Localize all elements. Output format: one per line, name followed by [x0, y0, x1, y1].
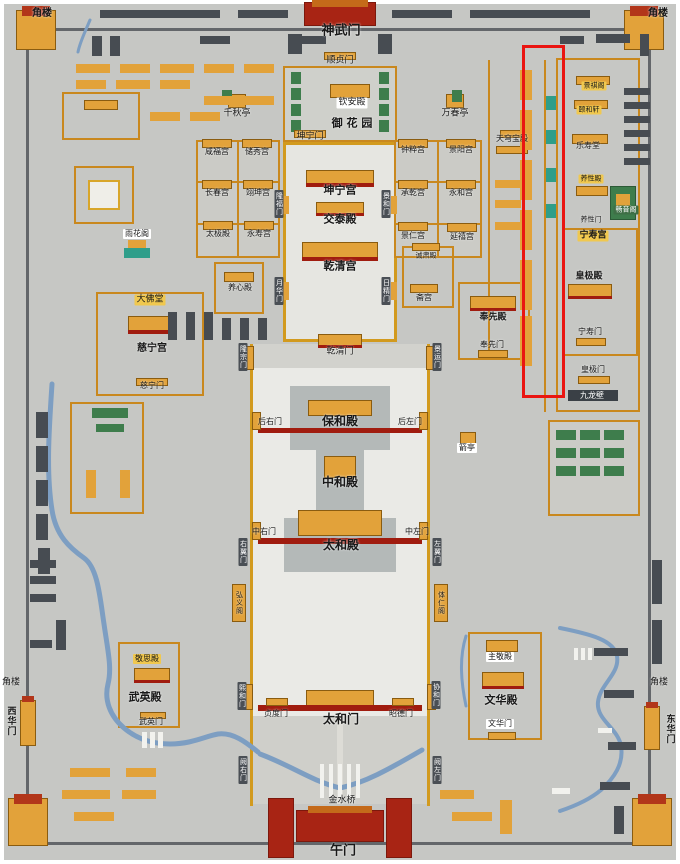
map-building: [110, 36, 120, 56]
map-building: [470, 10, 590, 18]
map-label: 储秀宫: [245, 148, 269, 156]
map-building: [495, 180, 521, 188]
map-label: 太极殿: [206, 230, 230, 238]
jinshui-bridge: [329, 764, 333, 798]
map-building: [652, 620, 662, 664]
map-label: 隆福门: [275, 190, 284, 218]
map-building: [30, 576, 56, 584]
map-label: 钟粹宫: [401, 146, 425, 154]
map-building: [134, 680, 170, 683]
map-label: 皇极门: [581, 366, 605, 374]
map-building: [306, 690, 374, 706]
map-label: 后左门: [398, 418, 422, 426]
map-label: 午门: [330, 845, 356, 858]
map-label: 文华门: [486, 719, 514, 729]
map-building: [578, 376, 610, 384]
jinshui-bridge: [356, 764, 360, 798]
map-building: [391, 282, 397, 300]
map-building: [470, 308, 516, 311]
map-label: 金水桥: [328, 797, 355, 806]
map-building: [412, 243, 440, 251]
map-label: 角楼: [2, 679, 20, 688]
map-label: 奉先殿: [479, 314, 506, 323]
map-label: 东华门: [665, 714, 674, 744]
map-building: [594, 648, 628, 656]
map-building: [291, 72, 301, 84]
map-label: 坤宁门: [296, 133, 323, 142]
map-building: [36, 446, 48, 472]
map-building: [392, 10, 452, 18]
map-building: [204, 96, 234, 105]
map-building: [22, 696, 34, 702]
map-building: [244, 64, 274, 73]
map-building: [56, 620, 66, 650]
map-building: [36, 480, 48, 506]
map-building: [258, 428, 422, 433]
map-label: 九龙壁: [578, 391, 606, 401]
map-building: [378, 34, 392, 54]
map-label: 翊坤宫: [246, 189, 270, 197]
meridian-gate: [268, 798, 294, 858]
map-building: [520, 70, 532, 100]
map-building: [204, 64, 234, 73]
map-label: 阙右门: [239, 756, 248, 784]
map-label: 后右门: [258, 418, 282, 426]
map-label: 主敬殿: [486, 652, 514, 662]
map-building: [588, 648, 592, 660]
map-building: [291, 88, 301, 100]
map-label: 中左门: [405, 528, 429, 536]
map-label: 养性门: [581, 217, 602, 224]
map-building: [604, 690, 634, 698]
map-building: [560, 36, 584, 44]
duanhong-bridge: [158, 732, 163, 748]
map-building: [410, 284, 438, 293]
map-label: 宁寿宫: [577, 231, 608, 242]
map-building: [581, 648, 585, 660]
meridian-gate: [296, 810, 384, 842]
map-building: [222, 318, 231, 340]
map-building: [624, 130, 650, 137]
map-building: [580, 448, 600, 458]
map-label: 奉先门: [480, 341, 504, 349]
map-label: 乐寿堂: [576, 142, 600, 150]
map-label: 景阳宫: [449, 146, 473, 154]
map-label: 角楼: [650, 679, 668, 688]
map-label: 保和殿: [322, 415, 358, 427]
map-building: [204, 312, 213, 340]
map-building: [604, 466, 624, 476]
map-building: [392, 698, 414, 706]
map-label: 永和宫: [449, 189, 473, 197]
map-label: 乾清宫: [324, 261, 357, 272]
corner-tower: [8, 798, 48, 846]
map-label: 左翼门: [433, 538, 442, 566]
map-building: [122, 790, 156, 799]
map-building: [92, 36, 102, 56]
map-building: [546, 130, 556, 144]
map-building: [100, 10, 220, 18]
map-building: [640, 34, 649, 56]
map-building: [306, 170, 374, 184]
map-label: 景仁宫: [401, 232, 425, 240]
map-structure: [544, 60, 546, 412]
map-label: 交泰殿: [324, 214, 357, 225]
map-building: [330, 84, 370, 98]
map-label: 日精门: [382, 277, 391, 305]
map-building: [14, 794, 42, 804]
duanhong-bridge: [150, 732, 155, 748]
map-building: [546, 96, 556, 110]
map-label: 右翼门: [239, 538, 248, 566]
map-building: [556, 466, 576, 476]
map-building: [520, 260, 532, 310]
map-building: [379, 88, 389, 100]
map-label: 天穹宝殿: [496, 135, 528, 143]
map-label: 长春宫: [205, 189, 229, 197]
map-label: 雨花阁: [123, 229, 151, 239]
map-building: [486, 640, 518, 652]
map-building: [580, 466, 600, 476]
map-label: 永寿宫: [247, 230, 271, 238]
map-building: [568, 296, 612, 299]
map-label: 乾清门: [326, 348, 353, 357]
map-label: 隆宗门: [239, 343, 248, 371]
map-building: [614, 806, 624, 834]
map-building: [398, 222, 428, 231]
map-building: [76, 64, 110, 73]
map-building: [291, 104, 301, 116]
map-label: 承乾宫: [401, 189, 425, 197]
map-label: 协和门: [432, 681, 441, 709]
map-building: [576, 338, 606, 346]
map-building: [495, 222, 521, 230]
map-building: [624, 144, 650, 151]
map-structure: [237, 140, 239, 258]
map-label: 熙和门: [238, 682, 247, 710]
map-label: 咸福宫: [205, 148, 229, 156]
map-label: 角楼: [648, 9, 668, 19]
map-building: [70, 768, 110, 777]
map-building: [160, 80, 190, 89]
map-building: [160, 64, 194, 73]
map-label: 中右门: [252, 528, 276, 536]
map-building: [120, 470, 130, 498]
map-building: [128, 240, 146, 248]
map-building: [624, 116, 650, 123]
map-building: [244, 96, 274, 105]
meridian-gate: [386, 798, 412, 858]
map-building: [36, 412, 48, 438]
map-label: 太和殿: [323, 539, 359, 551]
donghua-gate: [644, 706, 660, 750]
map-building: [440, 790, 474, 799]
map-building: [186, 312, 195, 340]
map-label: 昭德门: [389, 710, 413, 718]
duanhong-bridge: [142, 732, 147, 748]
map-building: [598, 728, 612, 733]
map-building: [520, 160, 532, 200]
map-label: 西华门: [6, 706, 15, 736]
map-label: 文华殿: [485, 695, 518, 706]
map-label: 畅音阁: [614, 206, 639, 215]
map-building: [120, 64, 150, 73]
map-label: 敬思殿: [133, 654, 161, 664]
map-building: [624, 88, 650, 95]
map-building: [500, 800, 512, 834]
map-label: 武英门: [139, 718, 163, 726]
map-building: [495, 200, 521, 208]
map-label: 体仁阁: [438, 591, 445, 615]
map-label: 箭亭: [457, 443, 477, 453]
map-label: 弘义阁: [236, 591, 243, 615]
map-building: [596, 34, 630, 43]
map-building: [190, 112, 220, 121]
map-label: 坤宁宫: [324, 185, 357, 196]
map-label: 皇极殿: [575, 273, 602, 282]
map-label: 景运门: [433, 343, 442, 371]
map-label: 诚肃殿: [416, 253, 437, 260]
map-label: 慈宁门: [140, 382, 164, 390]
map-building: [168, 312, 177, 340]
jinshui-bridge: [320, 764, 324, 798]
map-building: [646, 702, 658, 708]
map-building: [452, 812, 492, 821]
map-label: 贞度门: [264, 710, 288, 718]
map-building: [283, 196, 289, 214]
map-label: 月华门: [275, 277, 284, 305]
map-label: 养心殿: [228, 284, 252, 292]
map-label: 御 花 园: [332, 118, 373, 129]
map-label: 万春亭: [441, 110, 468, 119]
map-label: 角楼: [32, 9, 52, 19]
map-building: [116, 80, 150, 89]
map-building: [30, 640, 52, 648]
map-building: [92, 408, 128, 418]
map-building: [96, 424, 124, 432]
map-building: [312, 0, 368, 7]
map-building: [520, 316, 532, 366]
map-label: 慈宁宫: [137, 344, 167, 354]
map-building: [546, 168, 556, 182]
map-building: [574, 648, 578, 660]
map-building: [379, 104, 389, 116]
map-building: [74, 812, 114, 821]
map-building: [283, 282, 289, 300]
map-building: [30, 594, 56, 602]
map-label: 神武门: [321, 25, 360, 38]
map-building: [556, 448, 576, 458]
map-building: [238, 10, 288, 18]
map-building: [520, 210, 532, 250]
map-building: [576, 186, 608, 196]
corner-tower: [632, 798, 672, 846]
xihua-gate: [20, 700, 36, 746]
map-label: 宁寿门: [578, 328, 602, 336]
map-building: [447, 223, 477, 232]
map-building: [224, 272, 254, 282]
map-structure: [88, 180, 120, 210]
map-building: [62, 790, 110, 799]
map-building: [240, 318, 249, 340]
map-label: 养性殿: [579, 175, 604, 184]
map-building: [624, 158, 650, 165]
map-structure: [437, 140, 439, 258]
map-building: [86, 470, 96, 498]
map-building: [482, 686, 524, 689]
map-building: [580, 430, 600, 440]
map-building: [604, 430, 624, 440]
map-label: 武英殿: [129, 692, 162, 703]
map-building: [302, 242, 378, 258]
map-building: [391, 196, 397, 214]
map-label: 中和殿: [322, 476, 358, 488]
map-building: [600, 782, 630, 790]
map-building: [298, 510, 382, 536]
map-label: 钦安殿: [336, 98, 367, 109]
map-label: 大佛堂: [134, 295, 165, 306]
map-building: [452, 90, 462, 102]
map-building: [624, 102, 650, 109]
map-building: [266, 698, 288, 706]
forbidden-city-map-image: 角楼角楼神武门顺贞门钦安殿千秋亭万春亭御 花 园坤宁门咸福宫储秀宫天穹宝殿长春宫…: [0, 0, 680, 864]
map-building: [30, 560, 56, 568]
map-building: [379, 120, 389, 132]
map-building: [308, 806, 372, 813]
map-building: [124, 248, 150, 258]
map-building: [36, 514, 48, 540]
map-label: 延禧宫: [450, 233, 474, 241]
map-building: [76, 80, 106, 89]
map-building: [258, 318, 267, 340]
map-label: 顺贞门: [326, 57, 353, 66]
map-building: [488, 732, 516, 740]
map-building: [546, 204, 556, 218]
map-building: [608, 742, 636, 750]
map-label: 颐和轩: [577, 106, 602, 115]
map-building: [520, 110, 532, 150]
jinshui-bridge: [347, 764, 351, 798]
map-structure: [70, 402, 144, 514]
map-building: [552, 788, 570, 794]
map-building: [556, 430, 576, 440]
map-building: [652, 560, 662, 604]
map-label: 景和门: [382, 190, 391, 218]
map-building: [478, 350, 508, 358]
map-label: 斋宫: [416, 294, 432, 302]
map-building: [126, 768, 156, 777]
map-building: [84, 100, 118, 110]
jinshui-bridge: [338, 764, 342, 798]
map-label: 阙左门: [433, 756, 442, 784]
map-building: [638, 794, 666, 804]
map-building: [379, 72, 389, 84]
map-building: [150, 112, 180, 121]
map-building: [604, 448, 624, 458]
map-label: 千秋亭: [223, 110, 250, 119]
map-label: 太和门: [323, 713, 359, 725]
map-label: 景祺阁: [582, 82, 607, 91]
map-building: [200, 36, 230, 44]
